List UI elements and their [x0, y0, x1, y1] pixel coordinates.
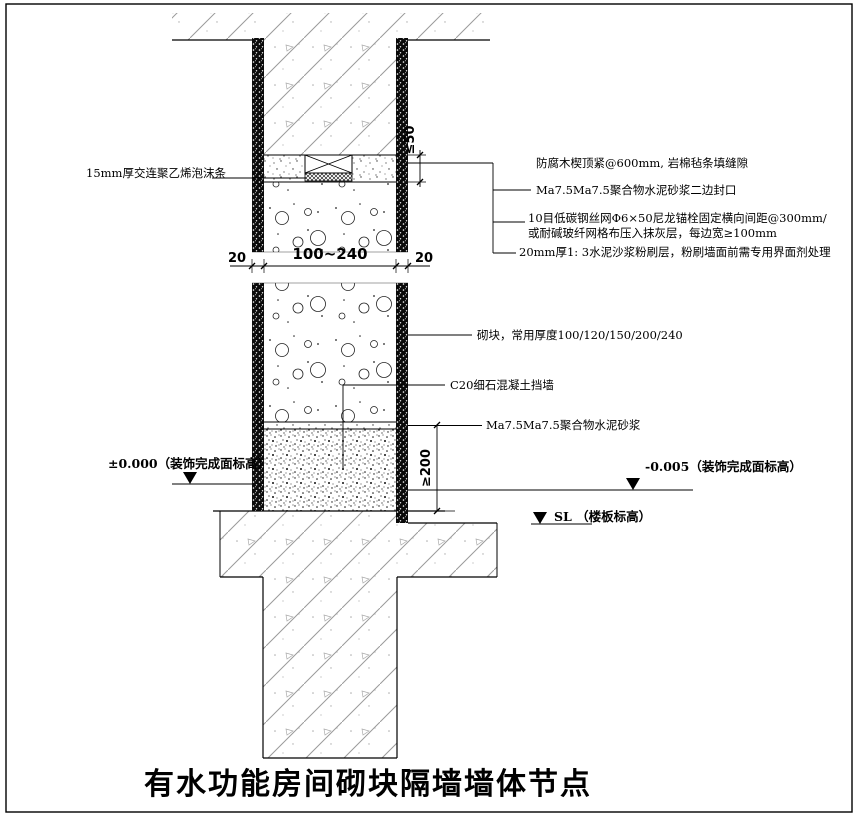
- curb-label: C20细石混凝土挡墙: [450, 378, 554, 392]
- pe-foam-strip: [305, 173, 352, 181]
- plaster-coat-label: 20mm厚1: 3水泥沙浆粉刷层，粉刷墙面前需专用界面剂处理: [519, 245, 831, 259]
- wall-detail-drawing: 20 100~240 20 ≤50 ≥200 15mm厚交连聚乙烯泡沫条 防腐木…: [0, 0, 859, 817]
- page-border: [6, 4, 852, 812]
- mortar-bed-band: [264, 422, 396, 429]
- level-right-label: -0.005（装饰完成面标高）: [645, 459, 802, 474]
- dim-curb-height: ≥200: [419, 449, 434, 487]
- mortar-seal-right: [352, 155, 396, 182]
- drawing-title: 有水功能房间砌块隔墙墙体节点: [144, 767, 592, 802]
- mortar-seal-label: Ma7.5Ma7.5聚合物水泥砂浆二边封口: [536, 183, 736, 197]
- wood-wedge: [305, 155, 352, 173]
- level-left-label: ±0.000（装饰完成面标高）: [108, 456, 270, 471]
- block-wall: [252, 182, 408, 422]
- dim-joint-gap: ≤50: [403, 126, 418, 155]
- dim-wall-width: 100~240: [292, 245, 367, 263]
- dim-right-offset: 20: [415, 251, 433, 266]
- foam-strip-label: 15mm厚交连聚乙烯泡沫条: [86, 166, 226, 180]
- mortar-bed-label: Ma7.5Ma7.5聚合物水泥砂浆: [486, 418, 641, 432]
- dim-left-offset: 20: [228, 251, 246, 266]
- mesh-label-line1: 10目低碳钢丝网Φ6×50尼龙锚栓固定横向间距@300mm/: [528, 211, 827, 225]
- wood-wedge-label: 防腐木楔顶紧@600mm, 岩棉毡条填缝隙: [536, 156, 749, 170]
- concrete-curb: [264, 429, 396, 511]
- mesh-label-line2: 或耐碱玻纤网格布压入抹灰层，每边宽≥100mm: [528, 226, 777, 240]
- block-label: 砌块，常用厚度100/120/150/200/240: [477, 328, 683, 342]
- level-slab-label: SL （楼板标高）: [554, 509, 651, 524]
